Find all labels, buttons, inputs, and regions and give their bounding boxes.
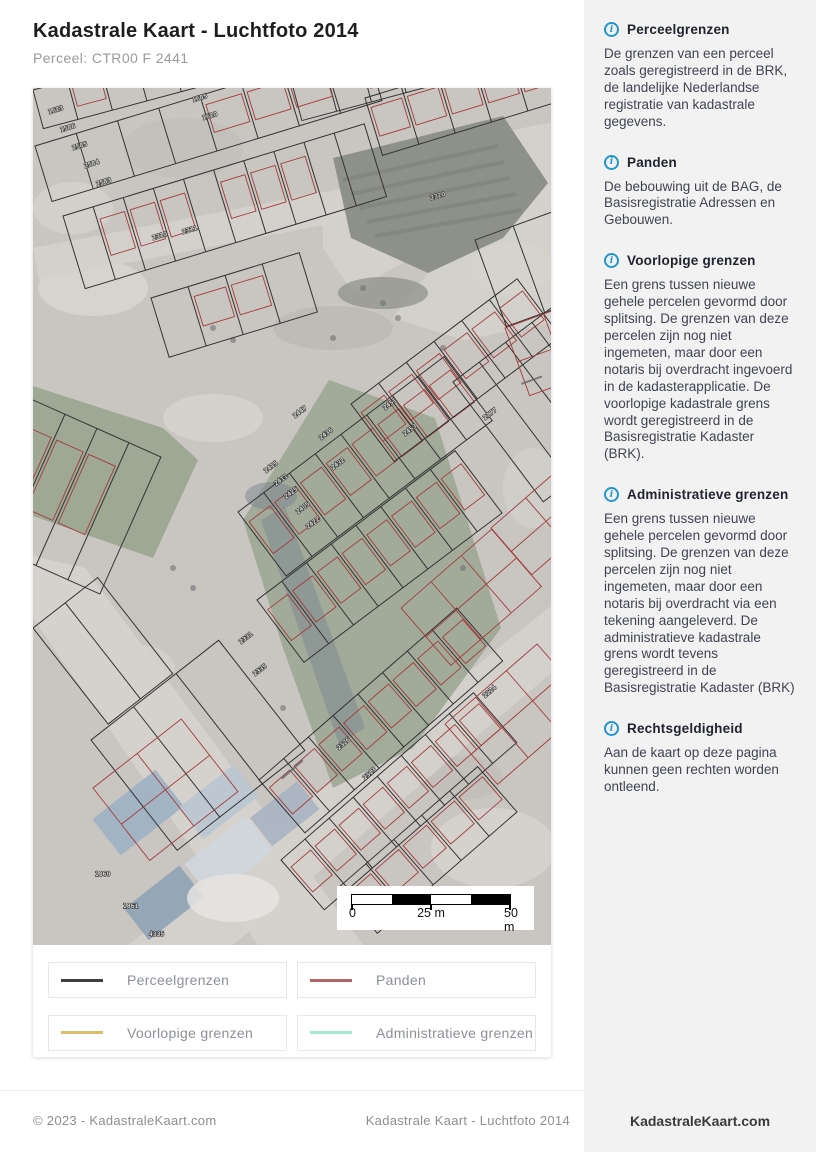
legend-label: Perceelgrenzen xyxy=(127,972,229,988)
info-section-body: Een grens tussen nieuwe gehele percelen … xyxy=(604,277,796,463)
info-section-perceelgrenzen: i Perceelgrenzen De grenzen van een perc… xyxy=(604,22,796,131)
info-section-title: Panden xyxy=(627,155,677,170)
info-icon: i xyxy=(604,155,619,170)
footer-copyright-link[interactable]: © 2023 - KadastraleKaart.com xyxy=(33,1113,216,1128)
scalebar-segment xyxy=(471,895,511,904)
legend-item-panden: Panden xyxy=(297,962,536,998)
info-section-voorlopige-grenzen: i Voorlopige grenzen Een grens tussen ni… xyxy=(604,253,796,463)
info-section-header: i Panden xyxy=(604,155,796,170)
info-section-body: Een grens tussen nieuwe gehele percelen … xyxy=(604,511,796,697)
info-icon: i xyxy=(604,487,619,502)
scalebar-bar xyxy=(351,894,511,905)
legend-label: Panden xyxy=(376,972,426,988)
scalebar-end-label: 50 m xyxy=(504,906,518,934)
scalebar-segment xyxy=(392,895,432,904)
info-icon: i xyxy=(604,721,619,736)
scalebar-segment xyxy=(352,895,392,904)
footer: © 2023 - KadastraleKaart.com Kadastrale … xyxy=(0,1090,584,1152)
legend-item-perceelgrenzen: Perceelgrenzen xyxy=(48,962,287,998)
info-section-header: i Rechtsgeldigheid xyxy=(604,721,796,736)
info-section-header: i Voorlopige grenzen xyxy=(604,253,796,268)
aerial-map-canvas: 1623158625852584258316851620232023102311… xyxy=(33,88,551,945)
footer-brand-area: KadastraleKaart.com xyxy=(584,1090,816,1152)
footer-brand-link[interactable]: KadastraleKaart.com xyxy=(630,1113,770,1129)
main-column: Kadastrale Kaart - Luchtfoto 2014 Percee… xyxy=(0,0,584,1152)
info-section-title: Perceelgrenzen xyxy=(627,22,730,37)
info-section-title: Voorlopige grenzen xyxy=(627,253,756,268)
legend-item-administratieve-grenzen: Administratieve grenzen xyxy=(297,1015,536,1051)
legend-label: Administratieve grenzen xyxy=(376,1025,533,1041)
administratieve-grenzen-line-swatch xyxy=(310,1031,352,1034)
scalebar-mid-label: 25 m xyxy=(417,906,445,920)
voorlopige-grenzen-line-swatch xyxy=(61,1031,103,1034)
info-icon: i xyxy=(604,253,619,268)
page-title: Kadastrale Kaart - Luchtfoto 2014 xyxy=(33,20,359,43)
parcel-number-label: 1860 xyxy=(95,871,110,878)
info-section-body: Aan de kaart op deze pagina kunnen geen … xyxy=(604,745,796,796)
scalebar-zero-label: 0 xyxy=(349,906,356,920)
page: Kadastrale Kaart - Luchtfoto 2014 Percee… xyxy=(0,0,816,1152)
info-section-rechtsgeldigheid: i Rechtsgeldigheid Aan de kaart op deze … xyxy=(604,721,796,796)
legend-item-voorlopige-grenzen: Voorlopige grenzen xyxy=(48,1015,287,1051)
info-section-body: De grenzen van een perceel zoals geregis… xyxy=(604,46,796,131)
map-card: 1623158625852584258316851620232023102311… xyxy=(33,88,551,1057)
legend-label: Voorlopige grenzen xyxy=(127,1025,253,1041)
panden-line-swatch xyxy=(310,979,352,982)
parcel-subtitle: Perceel: CTR00 F 2441 xyxy=(33,50,188,66)
footer-page-title: Kadastrale Kaart - Luchtfoto 2014 xyxy=(366,1113,570,1128)
perceelgrenzen-line-swatch xyxy=(61,979,103,982)
info-section-title: Administratieve grenzen xyxy=(627,487,788,502)
info-section-header: i Administratieve grenzen xyxy=(604,487,796,502)
scalebar-segment xyxy=(431,895,471,904)
parcel-number-label: 4335 xyxy=(149,931,164,938)
aerial-map: 1623158625852584258316851620232023102311… xyxy=(33,88,551,945)
info-section-body: De bebouwing uit de BAG, de Basisregistr… xyxy=(604,179,796,230)
map-scalebar: 0 25 m 50 m xyxy=(337,886,534,930)
map-legend: Perceelgrenzen Panden Voorlopige grenzen… xyxy=(33,945,551,1057)
parcel-number-label: 1861 xyxy=(123,903,138,910)
info-section-header: i Perceelgrenzen xyxy=(604,22,796,37)
scalebar-labels: 0 25 m 50 m xyxy=(351,905,511,921)
info-icon: i xyxy=(604,22,619,37)
info-section-administratieve-grenzen: i Administratieve grenzen Een grens tuss… xyxy=(604,487,796,697)
info-section-panden: i Panden De bebouwing uit de BAG, de Bas… xyxy=(604,155,796,230)
info-section-title: Rechtsgeldigheid xyxy=(627,721,743,736)
info-sidebar: i Perceelgrenzen De grenzen van een perc… xyxy=(584,0,816,1152)
